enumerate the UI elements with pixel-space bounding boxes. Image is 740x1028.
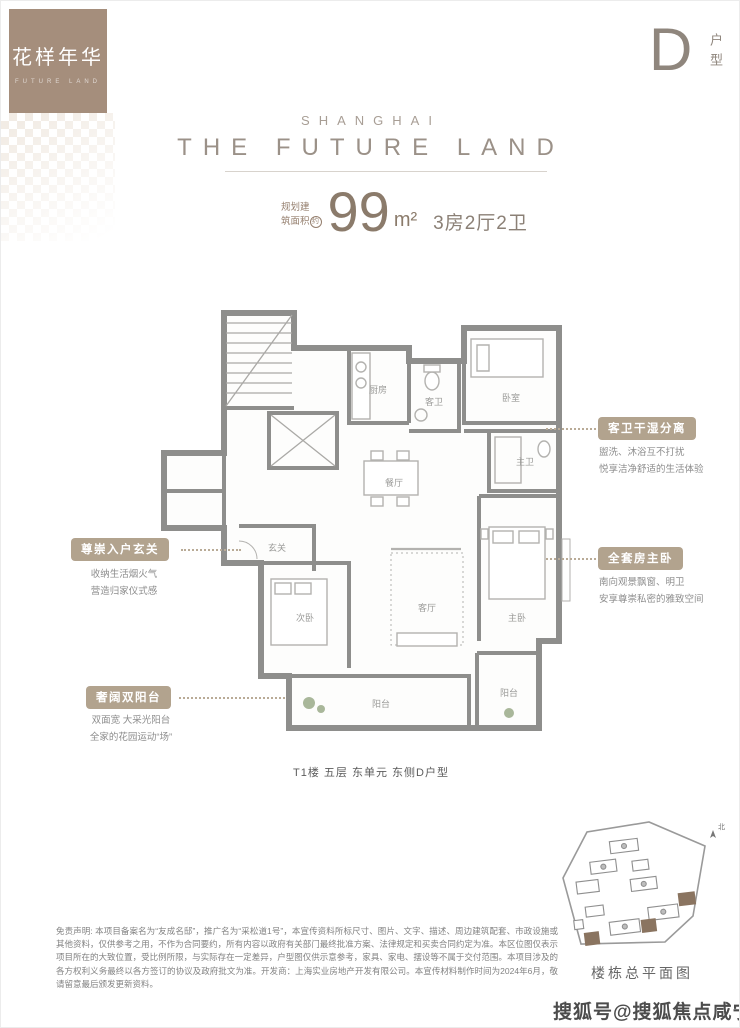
room-label-second: 次卧 <box>296 612 314 623</box>
callout-bath-line2: 悦享洁净舒适的生活体验 <box>599 464 704 475</box>
area-prefix: 规划建 筑面积约 <box>281 201 322 230</box>
room-label-bedroom: 卧室 <box>502 392 520 403</box>
callout-foyer-line2: 营造归家仪式感 <box>91 586 158 597</box>
area-prefix-line2: 筑面积 <box>281 216 310 227</box>
room-label-foyer: 玄关 <box>268 542 286 553</box>
area-unit: m² <box>394 209 417 232</box>
room-label-guest-bath: 客卫 <box>425 396 443 407</box>
room-label-master: 主卧 <box>508 612 526 623</box>
unit-type-label: 户型 <box>706 33 725 73</box>
brand-logo-title: 花样年华 <box>12 41 104 70</box>
room-label-master-bath: 主卫 <box>516 456 534 467</box>
leader-line-master <box>546 558 596 560</box>
room-label-balcony: 阳台 <box>372 698 390 709</box>
room-label-living: 客厅 <box>418 602 436 613</box>
floor-plan: 厨房 客卫 卧室 餐厅 主卫 主卧 玄关 次卧 客厅 阳台 阳台 <box>159 301 571 749</box>
header-divider <box>225 171 547 172</box>
compass-icon: 北 <box>710 823 725 838</box>
plan-caption: T1楼 五层 东单元 东侧D户型 <box>1 764 740 780</box>
brand-logo: 花样年华 FUTURE LAND <box>9 9 107 117</box>
checker-pattern-decoration <box>1 113 115 241</box>
callout-master-line1: 南向观景飘窗、明卫 <box>599 577 685 588</box>
room-label-balcony2: 阳台 <box>500 687 518 698</box>
callout-balcony-badge: 奢阔双阳台 <box>86 686 171 709</box>
callout-bath-badge: 客卫干湿分离 <box>598 417 696 440</box>
area-room-layout: 3房2厅2卫 <box>433 208 528 235</box>
leader-line-foyer <box>181 549 241 551</box>
callout-foyer-line1: 收纳生活烟火气 <box>91 569 158 580</box>
callout-master-line2: 安享尊崇私密的雅致空间 <box>599 594 704 605</box>
site-plan: 北 <box>553 816 731 958</box>
watermark-text: 搜狐号@搜狐焦点咸宁站 <box>553 997 735 1024</box>
header-title: THE FUTURE LAND <box>1 134 740 162</box>
site-plan-caption: 楼栋总平面图 <box>553 963 731 983</box>
room-label-kitchen: 厨房 <box>369 384 387 395</box>
callout-foyer-desc: 收纳生活烟火气 营造归家仪式感 <box>59 567 189 600</box>
leader-line-balcony <box>179 697 285 699</box>
leader-line-bath <box>546 428 596 430</box>
brand-logo-subtitle: FUTURE LAND <box>15 79 101 85</box>
callout-balcony-line2: 全家的花园运动“场” <box>90 732 172 743</box>
header-city: SHANGHAI <box>1 113 740 128</box>
area-statement: 规划建 筑面积约 99 m² 3房2厅2卫 <box>281 185 528 238</box>
disclaimer-text: 免责声明: 本项目备案名为“友成名邸”，推广名为“采松道1号”，本宣传资料所标尺… <box>56 925 558 991</box>
callout-bath-line1: 盥洗、沐浴互不打扰 <box>599 447 685 458</box>
room-label-dining: 餐厅 <box>385 477 403 488</box>
unit-type-letter: D <box>649 15 692 84</box>
area-value: 99 <box>328 185 390 238</box>
callout-foyer-badge: 尊崇入户玄关 <box>71 538 169 561</box>
area-prefix-line1: 规划建 <box>281 202 310 213</box>
flyer-page: 花样年华 FUTURE LAND D 户型 SHANGHAI THE FUTUR… <box>0 0 740 1028</box>
callout-master-badge: 全套房主卧 <box>598 547 683 570</box>
callout-bath-desc: 盥洗、沐浴互不打扰 悦享洁净舒适的生活体验 <box>599 445 739 478</box>
callout-master-desc: 南向观景飘窗、明卫 安享尊崇私密的雅致空间 <box>599 575 739 608</box>
callout-balcony-line1: 双面宽 大采光阳台 <box>92 715 171 726</box>
callout-balcony-desc: 双面宽 大采光阳台 全家的花园运动“场” <box>51 713 211 746</box>
compass-label: 北 <box>718 823 725 831</box>
area-circle-char: 约 <box>310 216 322 228</box>
